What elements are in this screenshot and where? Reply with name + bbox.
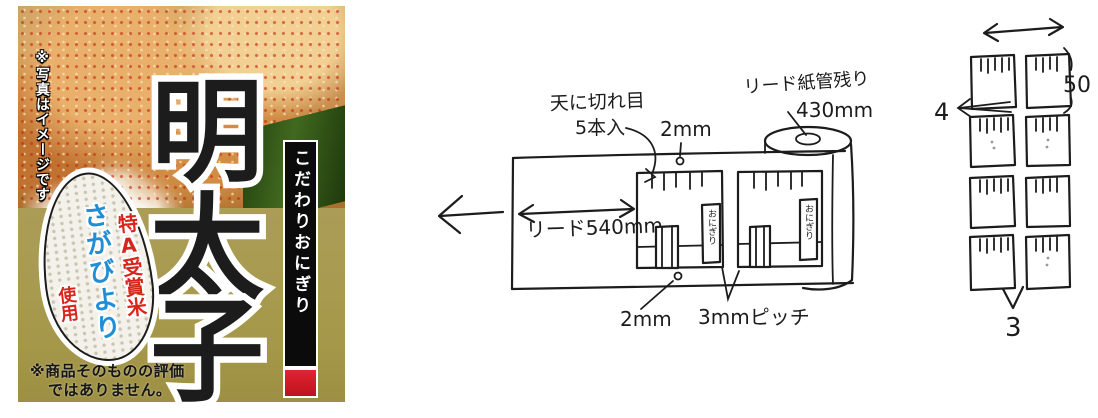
top-margin-label: 2mm xyxy=(660,117,712,141)
side-banner-text: こだわりおにぎり xyxy=(288,142,313,366)
bottom-margin-note: 2mm xyxy=(620,273,682,332)
roll-diagram: リード540mm おにぎり おにぎり xyxy=(400,0,880,418)
cut-note-line-2: 5本入 xyxy=(575,117,625,139)
pitch-note: 3mmピッチ xyxy=(698,267,810,329)
cut-note: 天に切れ目 5本入 xyxy=(549,90,655,182)
banner-red-block xyxy=(283,368,318,398)
cut-note-line-1: 天に切れ目 xyxy=(549,90,645,115)
rice-window-1 xyxy=(656,226,678,268)
photo-disclaimer-text: ※写真はイメージです xyxy=(32,50,52,210)
lead-length-dimension: リード540mm xyxy=(519,200,663,242)
mini-banner-text-1: おにぎり xyxy=(706,209,716,245)
sheet-diagram: 50 4 3 xyxy=(930,0,1098,380)
column-gap-label: 3 xyxy=(1005,313,1022,343)
paper-core-hole xyxy=(796,134,820,145)
core-note-line-1: リード紙管残り xyxy=(743,68,870,98)
pitch-label: 3mmピッチ xyxy=(698,305,810,329)
cut-slits-1 xyxy=(652,173,702,190)
disclaimer-line-1: ※商品そのものの評価 xyxy=(30,362,185,381)
product-label: ※写真はイメージです 明 太 子 特A受賞米 さがびより 使用 こだわりおにぎり… xyxy=(18,6,345,402)
core-note: リード紙管残り 430mm xyxy=(743,68,873,135)
core-note-line-2: 430mm xyxy=(796,98,873,122)
mini-banner-text-2: おにぎり xyxy=(803,204,813,240)
sheet-width-arrow xyxy=(984,19,1063,41)
column-gap-dimension: 3 xyxy=(1003,287,1023,343)
rice-window-2 xyxy=(750,226,770,267)
package-grid xyxy=(970,54,1071,290)
unwind-direction-arrow xyxy=(439,196,503,233)
bottom-margin-label: 2mm xyxy=(620,307,672,331)
disclaimer-line-2: ではありません。 xyxy=(48,381,185,400)
package-design-2: おにぎり xyxy=(738,171,822,267)
product-disclaimer: ※商品そのものの評価 ではありません。 xyxy=(30,362,185,400)
row-height-dimension: 50 xyxy=(1063,48,1091,113)
top-margin-note: 2mm xyxy=(660,117,712,165)
cut-slits-2 xyxy=(754,172,802,190)
side-banner: こだわりおにぎり xyxy=(283,140,318,368)
title-char-1: 明 xyxy=(151,68,263,198)
lead-length-label: リード540mm xyxy=(525,213,663,242)
scanned-page: ※写真はイメージです 明 太 子 特A受賞米 さがびより 使用 こだわりおにぎり… xyxy=(0,0,1098,418)
row-height-label: 50 xyxy=(1063,73,1091,98)
product-title: 明 太 子 xyxy=(143,61,303,406)
row-gap-label: 4 xyxy=(934,98,949,126)
